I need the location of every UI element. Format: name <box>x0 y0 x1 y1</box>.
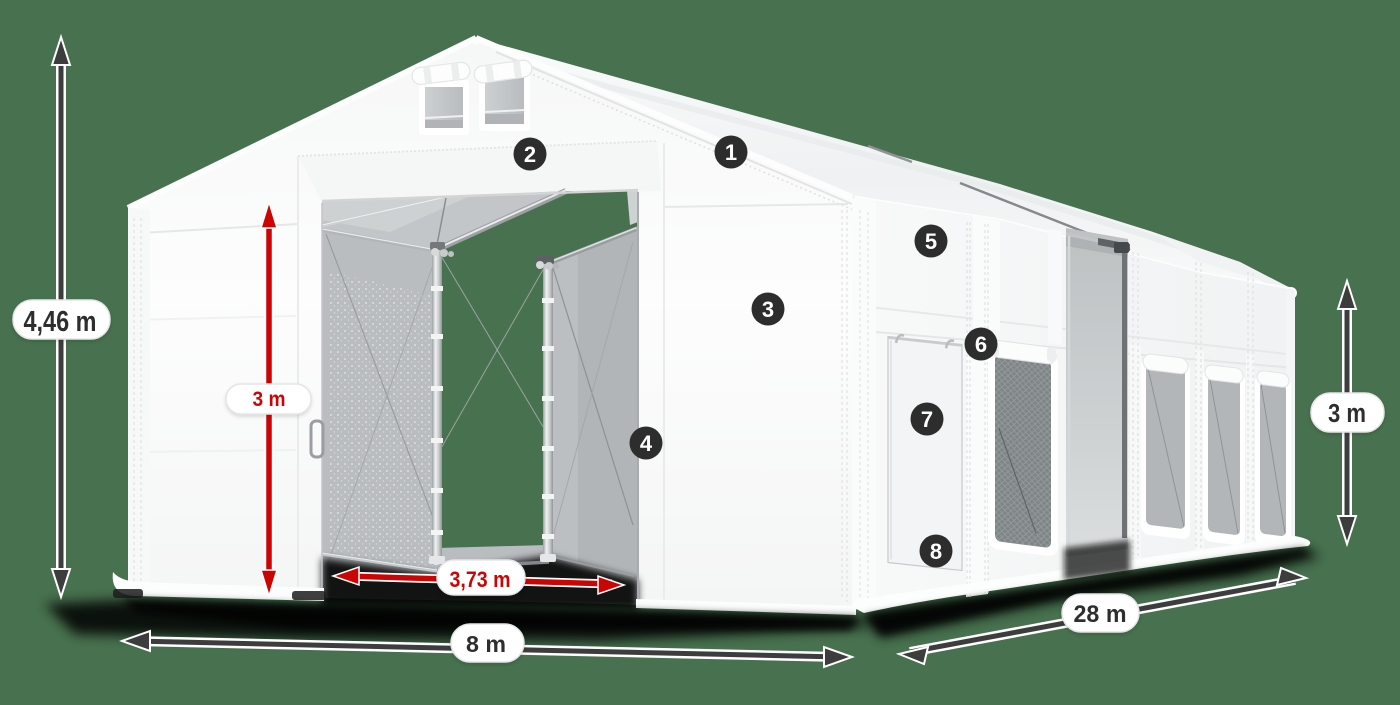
svg-text:4,46 m: 4,46 m <box>24 306 97 338</box>
svg-text:28 m: 28 m <box>1074 601 1127 628</box>
svg-text:5: 5 <box>925 229 937 254</box>
svg-text:4: 4 <box>640 431 653 456</box>
svg-text:8: 8 <box>930 539 942 564</box>
svg-text:3 m: 3 m <box>1328 400 1366 428</box>
svg-text:3,73 m: 3,73 m <box>450 567 511 592</box>
svg-text:2: 2 <box>524 142 536 167</box>
svg-text:1: 1 <box>725 140 737 165</box>
svg-text:8 m: 8 m <box>466 631 506 657</box>
svg-text:6: 6 <box>975 332 987 357</box>
svg-text:3 m: 3 m <box>253 388 286 411</box>
svg-text:7: 7 <box>921 407 933 432</box>
svg-text:3: 3 <box>762 297 774 322</box>
